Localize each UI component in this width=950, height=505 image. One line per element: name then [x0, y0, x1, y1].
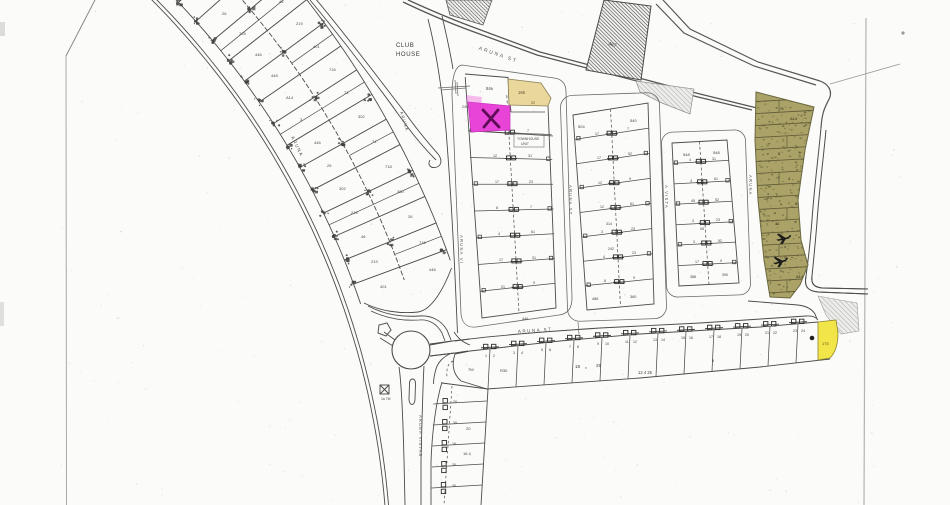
svg-text:ARUNA: ARUNA	[748, 175, 753, 196]
svg-text:10: 10	[605, 342, 609, 346]
svg-text:A14: A14	[790, 116, 798, 121]
svg-text:8: 8	[577, 345, 579, 349]
svg-text:4: 4	[603, 255, 605, 259]
svg-text:314: 314	[606, 222, 612, 226]
svg-text:TOWNHOUSE: TOWNHOUSE	[517, 137, 540, 141]
svg-text:446: 446	[522, 317, 528, 321]
svg-text:3: 3	[693, 240, 695, 244]
svg-text:08: 08	[700, 227, 704, 231]
svg-text:74: 74	[344, 90, 349, 95]
svg-text:52: 52	[718, 239, 722, 243]
svg-text:1a 7M: 1a 7M	[381, 397, 391, 401]
svg-text:26: 26	[222, 11, 227, 16]
svg-text:548: 548	[713, 150, 720, 155]
svg-text:166: 166	[518, 90, 526, 95]
svg-text:21: 21	[501, 285, 505, 289]
svg-text:540: 540	[630, 118, 637, 123]
svg-text:390: 390	[722, 273, 728, 277]
svg-text:715: 715	[419, 240, 426, 245]
svg-text:4: 4	[498, 232, 500, 236]
svg-text:74: 74	[372, 139, 377, 144]
svg-text:UNIT: UNIT	[521, 142, 529, 146]
svg-text:504: 504	[578, 124, 585, 129]
svg-text:18: 18	[717, 335, 721, 339]
svg-text:7: 7	[627, 127, 629, 131]
svg-text:5: 5	[541, 348, 543, 352]
svg-text:9: 9	[629, 177, 631, 181]
svg-text:24: 24	[801, 329, 805, 333]
svg-text:30: 30	[452, 463, 456, 467]
svg-text:29: 29	[596, 363, 602, 368]
svg-text:17: 17	[495, 180, 499, 184]
svg-text:20: 20	[466, 426, 471, 431]
svg-text:17: 17	[709, 335, 713, 339]
svg-text:31: 31	[528, 154, 532, 158]
svg-text:17: 17	[695, 260, 699, 264]
svg-text:486: 486	[592, 297, 598, 301]
svg-text:446: 446	[314, 140, 321, 145]
svg-text:12 4 25: 12 4 25	[638, 370, 653, 375]
svg-text:9: 9	[633, 276, 635, 280]
svg-text:4: 4	[690, 179, 692, 183]
svg-text:46: 46	[361, 234, 366, 239]
svg-text:219: 219	[351, 210, 358, 215]
svg-text:HOUSE: HOUSE	[396, 52, 420, 58]
svg-text:219: 219	[371, 259, 378, 264]
svg-text:23: 23	[632, 251, 636, 255]
svg-text:8: 8	[604, 279, 606, 283]
svg-text:12: 12	[598, 181, 602, 185]
svg-text:3: 3	[601, 230, 603, 234]
svg-text:8: 8	[496, 206, 498, 210]
svg-text:CLUB: CLUB	[396, 43, 414, 49]
svg-text:ARUNA ST: ARUNA ST	[568, 185, 573, 216]
svg-text:31: 31	[532, 256, 536, 260]
svg-text:23: 23	[793, 329, 797, 333]
svg-text:4: 4	[689, 158, 691, 162]
svg-text:R30: R30	[500, 368, 508, 373]
svg-text:31: 31	[712, 157, 716, 161]
svg-text:9: 9	[533, 281, 535, 285]
svg-text:3: 3	[692, 219, 694, 223]
svg-text:23: 23	[529, 180, 533, 184]
svg-text:9: 9	[720, 259, 722, 263]
svg-text:46: 46	[279, 0, 284, 4]
svg-text:31: 31	[775, 221, 780, 226]
svg-text:4: 4	[521, 351, 523, 355]
svg-text:7: 7	[527, 129, 529, 133]
svg-text:175: 175	[822, 341, 829, 346]
svg-text:17: 17	[595, 132, 599, 136]
svg-text:A14: A14	[286, 95, 294, 100]
svg-text:3: 3	[513, 351, 515, 355]
svg-text:718: 718	[385, 164, 392, 169]
svg-text:52: 52	[628, 152, 632, 156]
svg-text:21: 21	[765, 331, 769, 335]
svg-text:20: 20	[453, 400, 457, 404]
svg-text:242: 242	[608, 247, 614, 251]
svg-text:18: 18	[575, 364, 581, 369]
svg-text:219: 219	[296, 21, 303, 26]
svg-text:7: 7	[569, 345, 571, 349]
svg-text:17: 17	[499, 258, 503, 262]
svg-text:448: 448	[271, 73, 278, 78]
svg-text:302: 302	[339, 186, 346, 191]
svg-text:8: 8	[712, 359, 714, 363]
svg-text:12: 12	[600, 205, 604, 209]
svg-text:12: 12	[493, 154, 497, 158]
svg-text:12: 12	[633, 340, 637, 344]
svg-text:26: 26	[408, 214, 413, 219]
svg-text:17: 17	[597, 156, 601, 160]
svg-text:30: 30	[453, 421, 457, 425]
svg-text:1: 1	[485, 354, 487, 358]
svg-text:548: 548	[683, 152, 690, 157]
svg-text:25: 25	[327, 163, 332, 168]
svg-text:11: 11	[625, 340, 629, 344]
svg-text:45: 45	[691, 199, 695, 203]
svg-text:19: 19	[737, 333, 741, 337]
svg-text:7M: 7M	[468, 367, 474, 372]
svg-text:715: 715	[239, 31, 246, 36]
svg-text:x: x	[585, 366, 587, 370]
svg-text:380: 380	[397, 189, 404, 194]
svg-text:302: 302	[358, 114, 365, 119]
svg-text:A VISTA: A VISTA	[664, 185, 669, 209]
svg-text:401: 401	[380, 284, 387, 289]
svg-text:ARUNA VISTAS: ARUNA VISTAS	[418, 415, 423, 457]
svg-text:ARUNA VI: ARUNA VI	[459, 235, 464, 264]
svg-text:16: 16	[689, 336, 693, 340]
svg-text:446: 446	[255, 52, 262, 57]
svg-text:30: 30	[452, 484, 456, 488]
svg-text:16: 16	[452, 442, 456, 446]
svg-text:446: 446	[429, 267, 436, 272]
svg-text:7: 7	[530, 205, 532, 209]
svg-text:23: 23	[631, 227, 635, 231]
svg-text:249: 249	[462, 105, 468, 109]
svg-text:61: 61	[630, 202, 634, 206]
svg-text:22: 22	[531, 101, 535, 105]
svg-text:13: 13	[653, 338, 657, 342]
svg-text:2: 2	[493, 354, 495, 358]
svg-text:716: 716	[329, 67, 336, 72]
svg-text:61: 61	[531, 230, 535, 234]
svg-text:9: 9	[597, 342, 599, 346]
svg-text:14: 14	[661, 338, 665, 342]
svg-text:360: 360	[630, 295, 636, 299]
svg-text:22: 22	[773, 331, 777, 335]
svg-text:61: 61	[714, 177, 718, 181]
svg-text:52: 52	[715, 198, 719, 202]
svg-text:20: 20	[745, 333, 749, 337]
svg-text:388: 388	[690, 275, 696, 279]
svg-text:401: 401	[313, 44, 320, 49]
svg-text:23: 23	[716, 218, 720, 222]
